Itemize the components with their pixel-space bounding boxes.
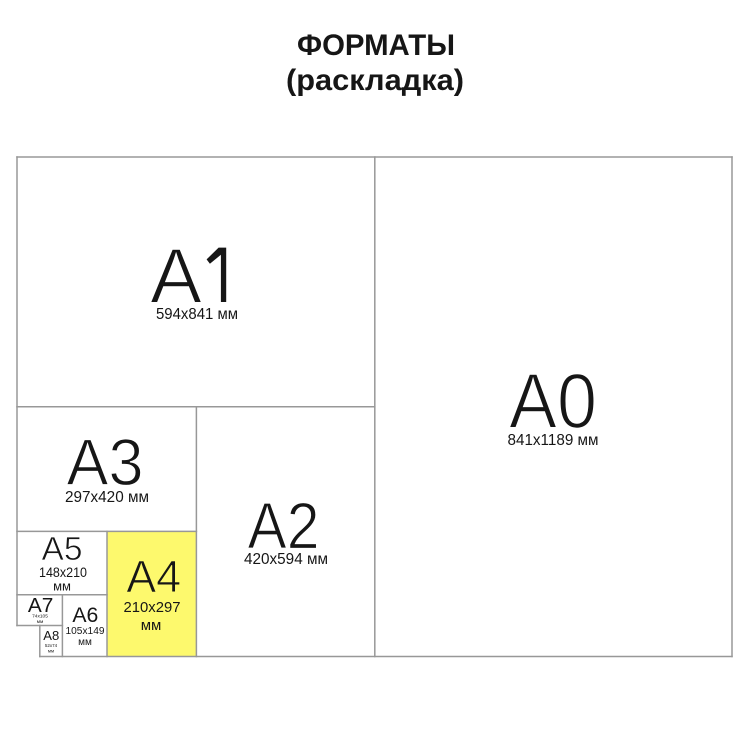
svg-text:мм: мм xyxy=(48,649,54,654)
svg-text:105х149: 105х149 xyxy=(66,626,105,637)
svg-text:74х105: 74х105 xyxy=(32,614,48,620)
svg-text:297х420 мм: 297х420 мм xyxy=(65,489,149,506)
svg-text:мм: мм xyxy=(53,579,71,594)
svg-text:594х841 мм: 594х841 мм xyxy=(156,306,238,323)
svg-text:мм: мм xyxy=(141,617,162,634)
svg-text:(раскладка): (раскладка) xyxy=(286,64,464,97)
svg-text:210х297: 210х297 xyxy=(124,599,181,616)
svg-text:A6: A6 xyxy=(72,603,98,627)
svg-text:ФОРМАТЫ: ФОРМАТЫ xyxy=(297,29,455,62)
svg-text:A4: A4 xyxy=(126,551,181,602)
svg-text:420х594 мм: 420х594 мм xyxy=(244,551,328,568)
svg-text:841х1189 мм: 841х1189 мм xyxy=(508,432,599,449)
svg-text:A8: A8 xyxy=(43,629,59,643)
svg-text:A5: A5 xyxy=(42,531,83,568)
svg-text:мм: мм xyxy=(78,637,92,648)
svg-text:мм: мм xyxy=(37,620,44,625)
svg-text:52х74: 52х74 xyxy=(45,643,58,648)
